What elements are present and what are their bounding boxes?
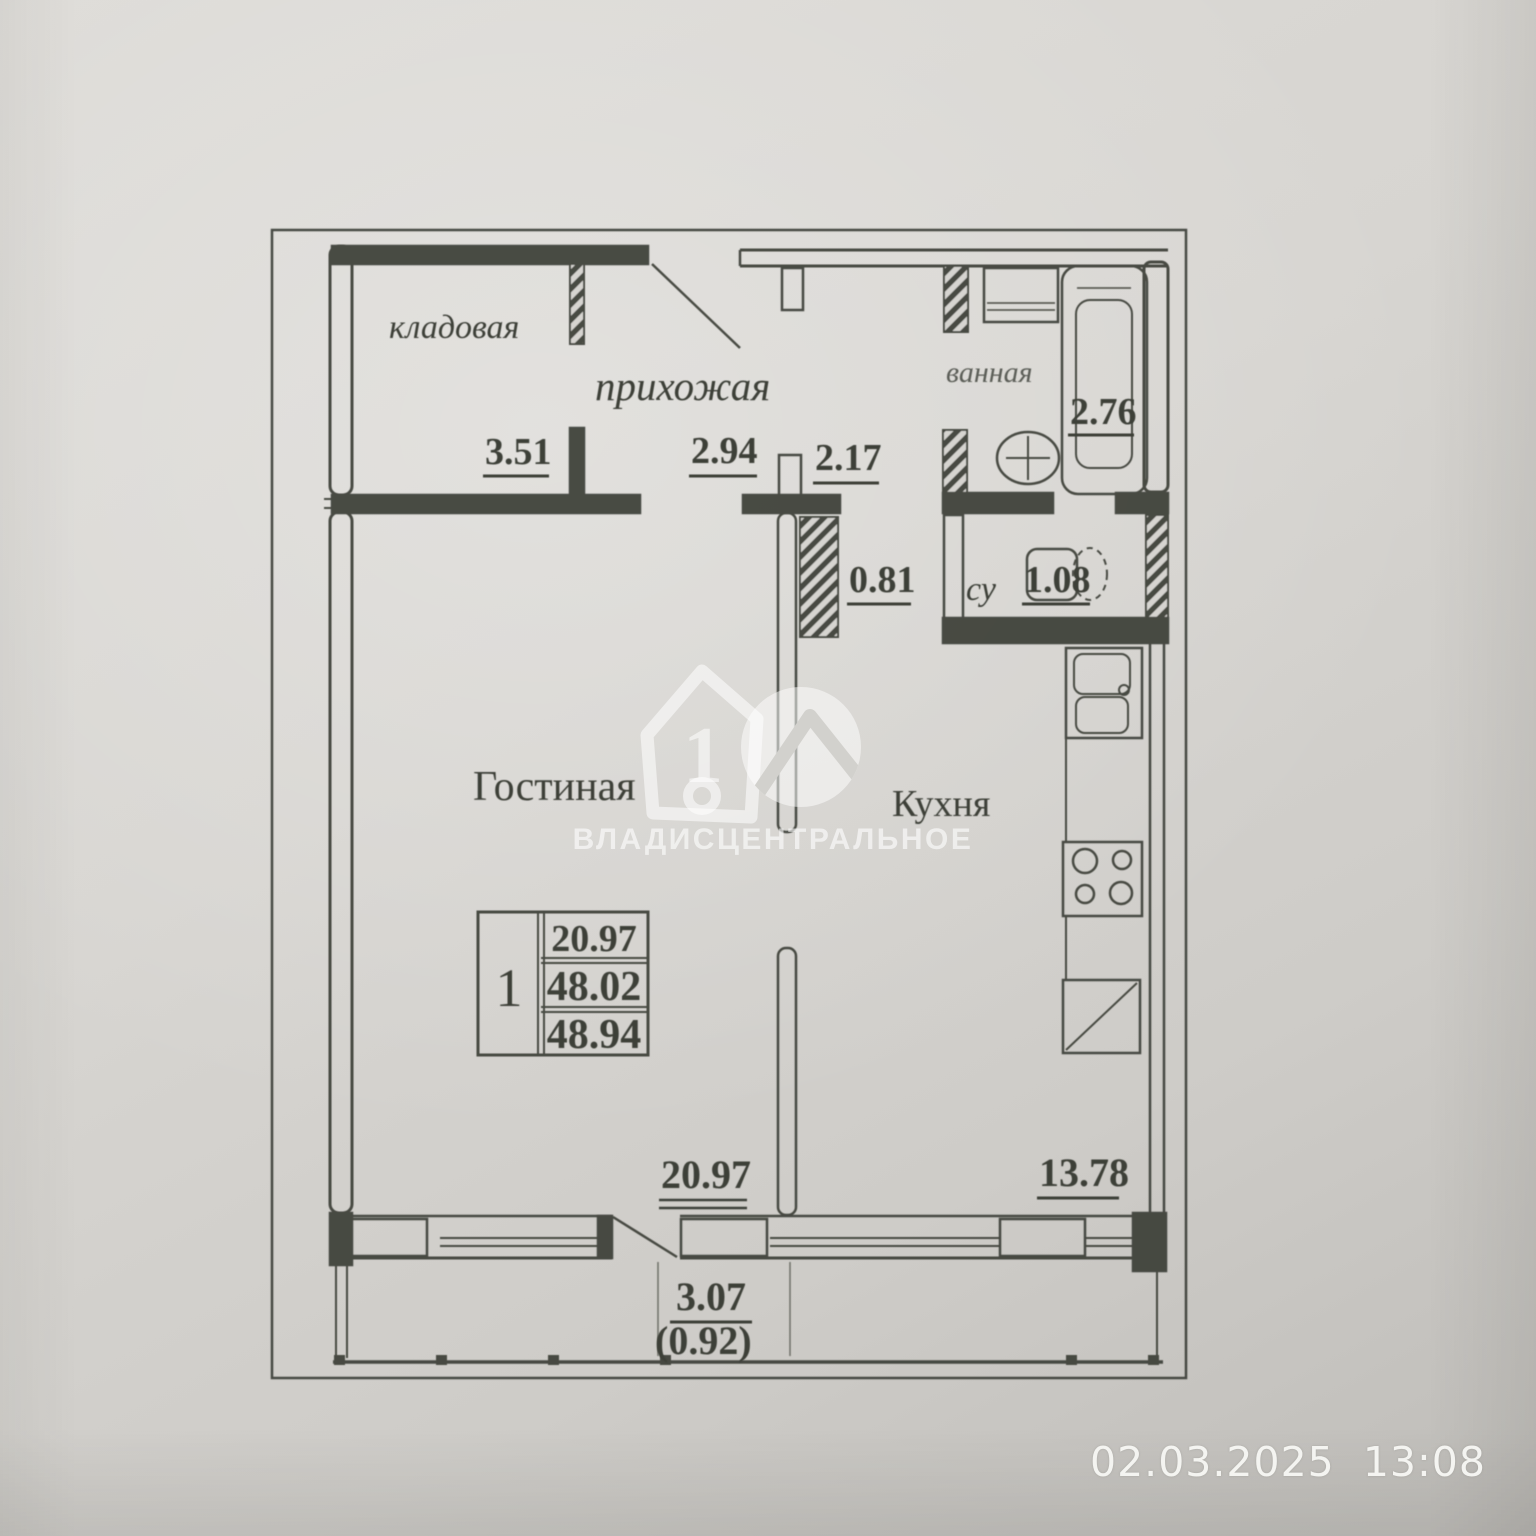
bathroom-bottom-wall-left (943, 493, 1053, 513)
sink-bowl-2 (1076, 697, 1128, 733)
hallway-wall-left (332, 495, 640, 513)
wc-bottom-wall (943, 618, 1168, 643)
bathroom-bottom-wall-right (1116, 493, 1168, 513)
burner (1076, 885, 1094, 903)
burner (1110, 882, 1132, 904)
vent-shaft-upper (944, 266, 968, 332)
kitchen-right-wall (1150, 643, 1164, 1216)
room-label-hallway: прихожая (595, 363, 770, 409)
dim-wc: 1.08 (1024, 559, 1091, 601)
living-door-leaf (800, 517, 838, 637)
room-label-bathroom: ванная (946, 356, 1033, 389)
dim-hallway-right: 2.17 (815, 437, 882, 479)
living-kitchen-partition (778, 513, 838, 1215)
bathtub-inner (1076, 300, 1132, 468)
kitchen-fixtures (1063, 648, 1142, 1053)
left-wall (324, 246, 360, 1213)
balcony-door-swing (613, 1217, 677, 1257)
wall-stub-entrance (782, 268, 803, 310)
wall-pier (681, 1219, 767, 1256)
entrance-door-swing (652, 264, 740, 348)
dim-balcony: 3.07 (676, 1274, 746, 1319)
storage-wall-hatched (570, 264, 584, 344)
dim-bathroom: 2.76 (1070, 391, 1137, 433)
wall-stub-hallway (779, 455, 801, 497)
room-label-living: Гостиная (473, 764, 636, 810)
info-table-values: 1 20.97 48.02 48.94 (496, 918, 642, 1058)
wc-left-wall (944, 515, 963, 619)
wc-right-wall-hatched (1146, 515, 1168, 623)
partition-lower (778, 948, 796, 1215)
dim-hallway-left: 2.94 (691, 430, 758, 472)
dim-living: 20.97 (661, 1152, 751, 1197)
sink-bowl-1 (1074, 654, 1130, 694)
washing-machine (984, 268, 1058, 322)
wall-pier (343, 1219, 427, 1256)
table-total-area: 48.94 (547, 1012, 642, 1058)
burner (1073, 849, 1097, 873)
table-area: 48.02 (547, 964, 642, 1010)
door-jamb (598, 1216, 612, 1258)
table-living-area: 20.97 (551, 918, 637, 960)
dim-storage: 3.51 (485, 431, 552, 473)
vent-shaft-lower (943, 430, 967, 494)
room-label-kitchen: Кухня (892, 783, 990, 825)
wall-pier (1000, 1219, 1085, 1256)
dim-corridor: 0.81 (849, 559, 916, 601)
top-wall-solid (332, 246, 648, 264)
table-rooms-count: 1 (496, 958, 523, 1018)
storage-partition (570, 264, 584, 497)
dim-kitchen: 13.78 (1039, 1150, 1129, 1195)
burner (1113, 851, 1131, 869)
floor-plan-drawing: кладовая прихожая ванная су Гостиная Кух… (0, 0, 1536, 1536)
room-label-wc: су (966, 571, 997, 608)
room-label-storage: кладовая (389, 309, 519, 346)
left-wall-upper (330, 246, 352, 495)
dim-balcony-reduced: (0.92) (655, 1318, 752, 1363)
left-wall-lower (330, 512, 352, 1213)
camera-timestamp: 02.03.2025 13:08 (1090, 1438, 1486, 1486)
watermark-company-name: ВЛАДИСЦЕНТРАЛЬНОЕ (573, 823, 974, 856)
photographed-floor-plan: кладовая прихожая ванная су Гостиная Кух… (0, 0, 1536, 1536)
fridge-diagonal (1066, 983, 1137, 1050)
storage-wall-solid (570, 428, 584, 497)
corner-block-right (1133, 1213, 1166, 1271)
bottom-wall (330, 1213, 1166, 1271)
